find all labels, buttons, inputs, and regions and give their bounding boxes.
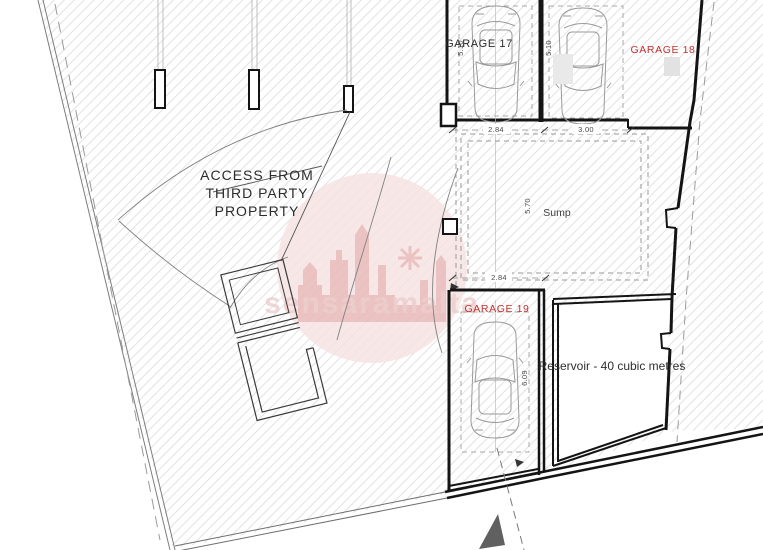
erased-patch	[664, 57, 680, 76]
erased-patch	[553, 54, 573, 84]
dim-sump-depth: 5.70	[523, 198, 532, 214]
access-note-line2: THIRD PARTY	[205, 185, 308, 201]
site-plan-drawing: sensaramalta	[0, 0, 763, 550]
watermark-star-icon	[398, 246, 422, 270]
dim-garage19-depth: 6.09	[520, 370, 529, 386]
dim-garage17-depth: 5.10	[456, 40, 465, 56]
access-note-line3: PROPERTY	[215, 203, 300, 219]
site-plan: sensaramalta	[0, 0, 763, 550]
label-garage18: GARAGE 18	[631, 44, 696, 56]
column-marker-sump	[443, 219, 457, 234]
dim-garage18-depth: 5.10	[544, 40, 553, 56]
north-arrow-icon	[479, 514, 505, 549]
label-garage19: GARAGE 19	[465, 303, 530, 315]
column-marker-garage17	[441, 104, 456, 126]
dim-sump-width: 2.84	[491, 273, 507, 282]
dim-garage18-width: 3.00	[578, 125, 594, 134]
label-reservoir: Reservoir - 40 cubic metres	[539, 359, 686, 373]
access-note: ACCESS FROM THIRD PARTY PROPERTY	[200, 167, 314, 219]
label-sump: Sump	[543, 207, 571, 219]
dim-garage17-width: 2.84	[488, 125, 504, 134]
access-note-line1: ACCESS FROM	[200, 167, 314, 183]
